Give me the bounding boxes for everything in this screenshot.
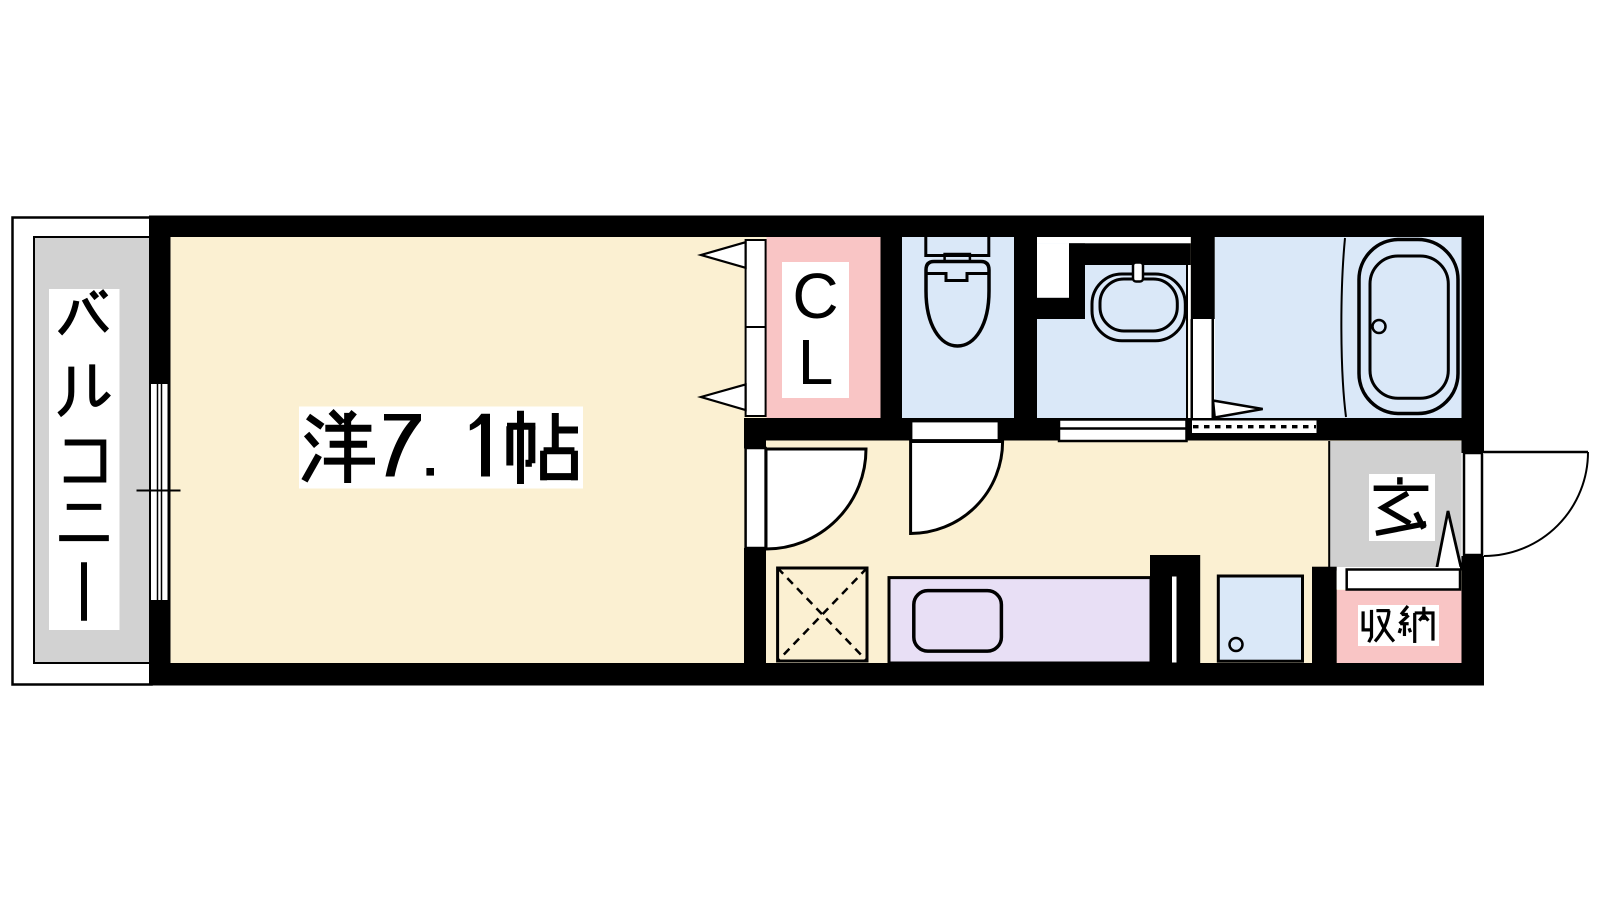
svg-text:L: L: [798, 326, 834, 398]
svg-text:C: C: [792, 260, 838, 332]
